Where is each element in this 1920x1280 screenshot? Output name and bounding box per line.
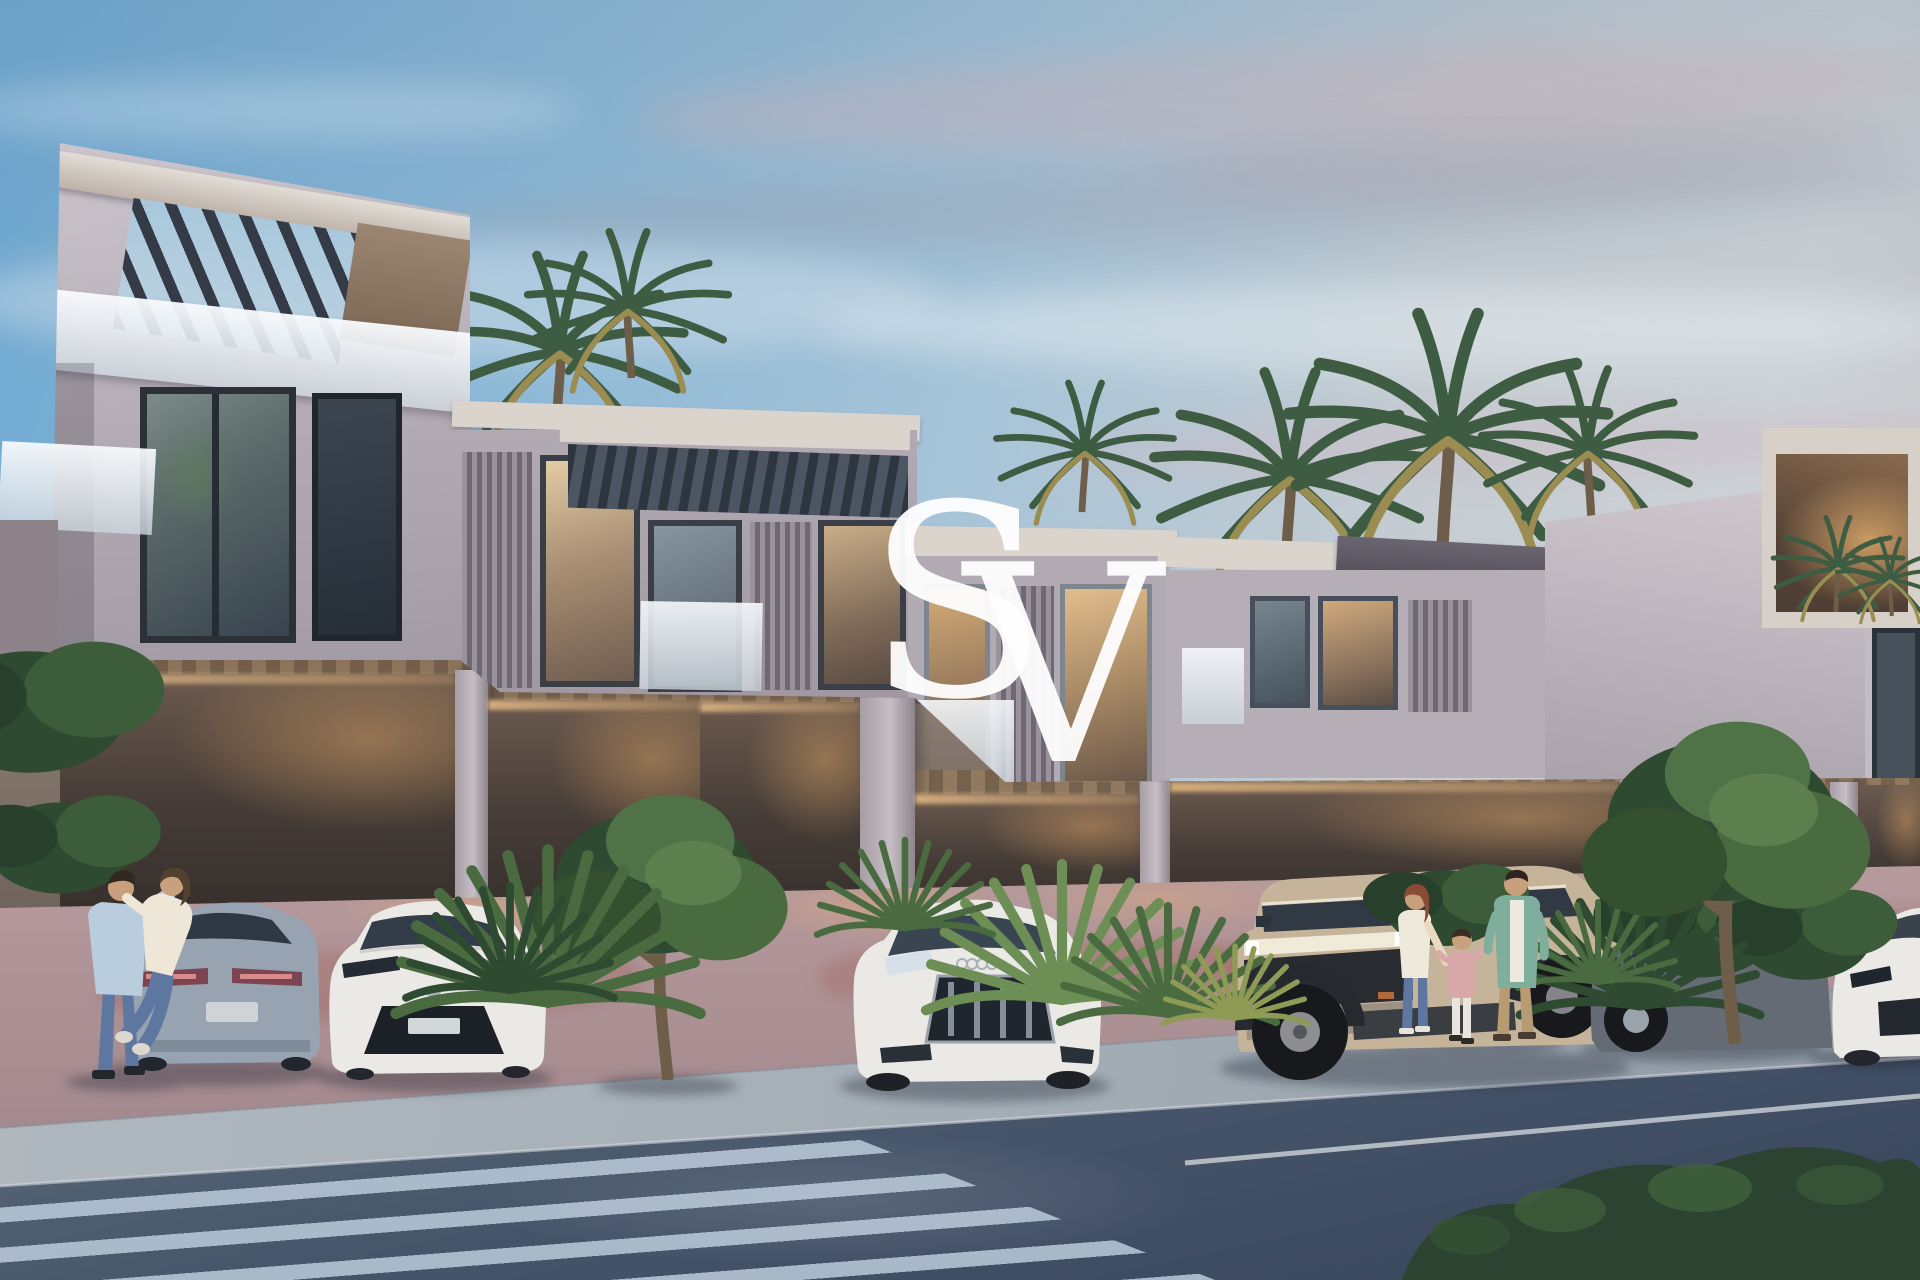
watermark: S V bbox=[0, 0, 1920, 1280]
watermark-letter-v: V bbox=[964, 530, 1162, 804]
architectural-render-scene: S V bbox=[0, 0, 1920, 1280]
